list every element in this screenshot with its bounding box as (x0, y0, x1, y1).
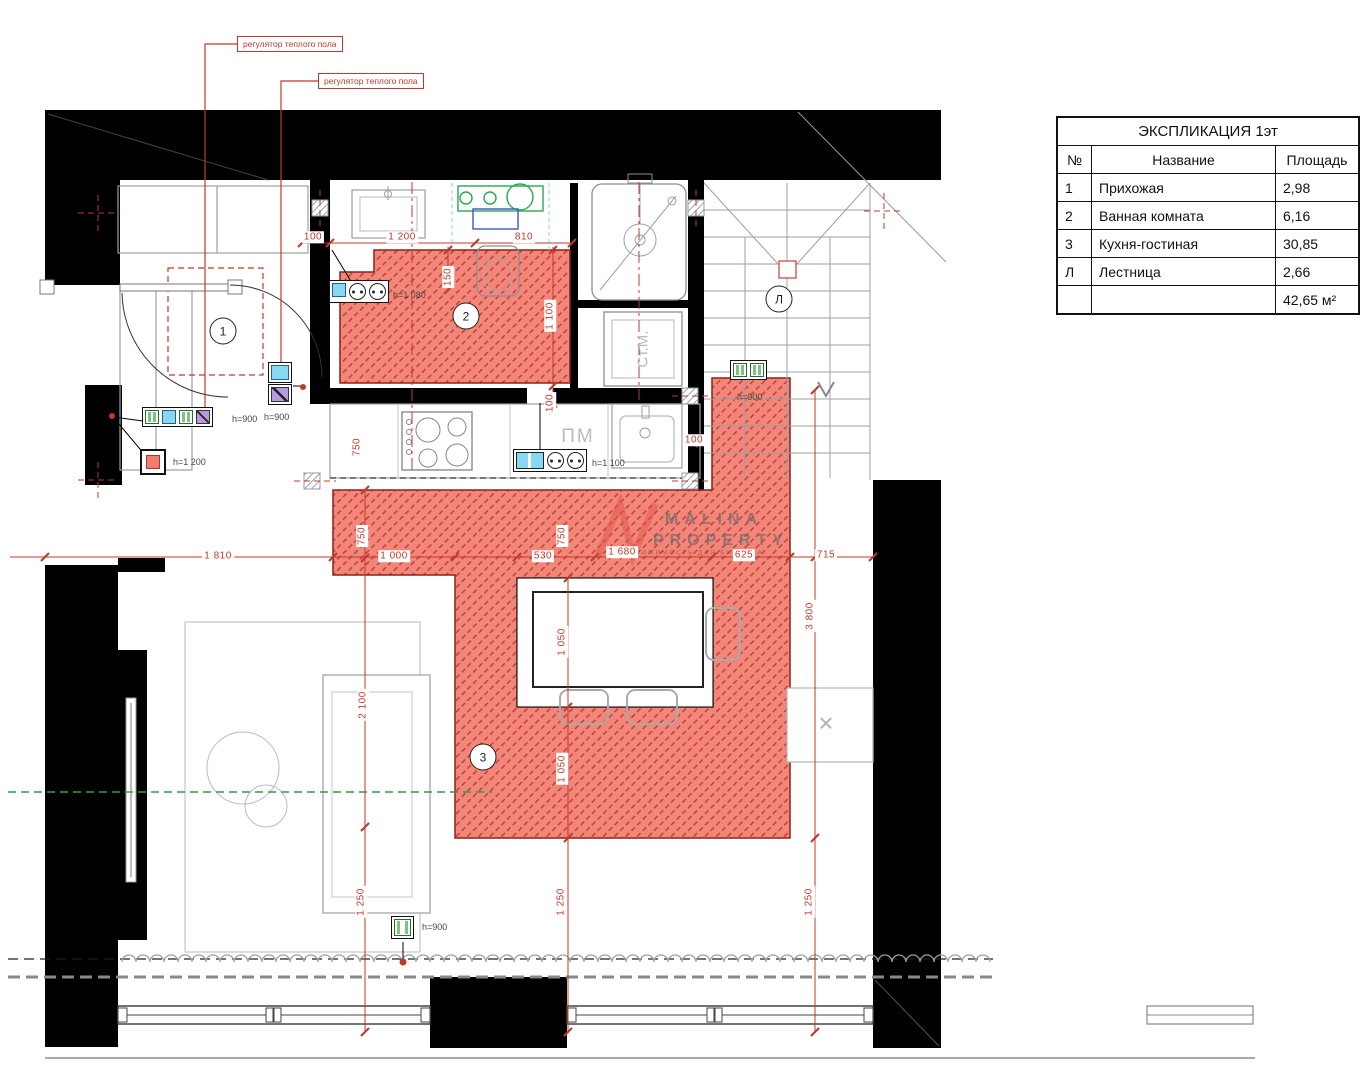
thermostat-purple-icon (271, 387, 289, 402)
switch-blue-icon (271, 365, 289, 380)
switch-blue-icon (162, 410, 176, 424)
door-jamb (228, 280, 242, 294)
floor-plan-canvas: регулятор теплого пола регулятор теплого… (0, 0, 1368, 1085)
header-num: № (1058, 146, 1092, 173)
explication-table: ЭКСПЛИКАЦИЯ 1эт № Название Площадь 1 При… (1056, 116, 1360, 315)
cell-area: 2,98 (1276, 174, 1358, 201)
cell-num: 3 (1058, 230, 1092, 257)
table-row: 2 Ванная комната 6,16 (1058, 202, 1358, 230)
socket-round-icon (349, 283, 366, 300)
stairs-socket-group (730, 360, 767, 380)
socket-double-blue-icon (516, 452, 544, 469)
bath-blue-unit (473, 209, 518, 229)
dimension-label: 810 (513, 231, 535, 243)
table-total-row: 42,65 м² (1058, 286, 1358, 313)
explication-title: ЭКСПЛИКАЦИЯ 1эт (1058, 118, 1358, 146)
switch-green-icon (179, 410, 193, 424)
room-marker-bath: 2 (453, 303, 480, 330)
kitchen-socket-group (513, 449, 587, 472)
cell-num: 1 (1058, 174, 1092, 201)
thermostat-purple-icon (196, 410, 210, 424)
room-marker-kitchen: 3 (470, 744, 497, 771)
table-row: 1 Прихожая 2,98 (1058, 174, 1358, 202)
window-socket (391, 916, 414, 939)
stairs-down-arrow (818, 382, 834, 396)
dimension-label: 1 200 (386, 231, 418, 243)
height-label: h=1 100 (592, 458, 625, 468)
cell-num (1058, 286, 1092, 313)
entry-switch-group (142, 407, 213, 427)
coffee-table-small (245, 785, 287, 827)
cell-area: 6,16 (1276, 202, 1358, 229)
dimension-label: 1 000 (378, 550, 410, 562)
wall-left-mid (85, 385, 122, 485)
door-jamb (40, 280, 54, 294)
explication-header-row: № Название Площадь (1058, 146, 1358, 174)
dimension-label: 1 680 (606, 546, 638, 558)
table-row: 3 Кухня-гостиная 30,85 (1058, 230, 1358, 258)
stairs-newel (779, 261, 796, 278)
coffee-table-large (207, 732, 279, 804)
height-label: h=900 (264, 412, 289, 422)
height-label: h=1 200 (173, 457, 206, 467)
cell-name: Ванная комната (1092, 202, 1276, 229)
dimension-label: 1 050 (556, 753, 568, 785)
height-label: h=900 (232, 414, 257, 424)
height-label: h=900 (737, 392, 762, 402)
room-marker-stairs: Л (766, 286, 793, 313)
dimension-label: 1 050 (556, 626, 568, 658)
socket-round-icon (369, 283, 386, 300)
wall-step (118, 558, 165, 572)
dimension-label: 750 (351, 436, 363, 458)
dimension-label: 715 (815, 549, 837, 561)
cell-num: Л (1058, 258, 1092, 285)
dimension-label: 3 800 (804, 600, 816, 632)
height-label: h=900 (422, 922, 447, 932)
cell-name: Лестница (1092, 258, 1276, 285)
dimension-label: 1 250 (555, 886, 567, 918)
dimension-label: 150 (442, 266, 454, 288)
wall-right (873, 480, 941, 1048)
socket-green-icon (750, 363, 764, 377)
switch-green-icon (145, 410, 159, 424)
header-area: Площадь (1276, 146, 1358, 173)
cell-name (1092, 286, 1276, 313)
regulator-label-2: регулятор теплого пола (318, 73, 424, 89)
wall-bath-shower (570, 183, 578, 393)
regulator-leader-1 (205, 44, 237, 410)
dimension-label: 530 (532, 550, 554, 562)
socket-green-icon (733, 363, 747, 377)
header-name: Название (1092, 146, 1276, 173)
wall-left-upper (45, 180, 120, 285)
dimension-label: 2 100 (357, 689, 369, 721)
floor-thermostat-symbol (140, 449, 166, 475)
room-marker-hall: 1 (210, 318, 237, 345)
entry-door-leaf (120, 284, 228, 291)
wall-left-lower (45, 565, 118, 1047)
cell-name: Кухня-гостиная (1092, 230, 1276, 257)
watermark-line2: PROPERTY (653, 532, 789, 550)
dimension-label: 625 (733, 549, 755, 561)
watermark-line1: MALINA (665, 511, 763, 529)
dimension-label: 100 (302, 231, 324, 243)
cabinet-cross-mark: ✕ (818, 712, 835, 737)
hall-switch-top (268, 362, 292, 383)
dimension-label: 100 (544, 392, 556, 414)
socket-green-icon (394, 919, 411, 936)
thermostat-red-icon (146, 455, 160, 469)
cell-total-area: 42,65 м² (1276, 286, 1358, 313)
socket-round-icon (567, 452, 584, 469)
dimension-label: 1 810 (202, 550, 234, 562)
cell-area: 2,66 (1276, 258, 1358, 285)
socket-round-icon (547, 452, 564, 469)
cell-name: Прихожая (1092, 174, 1276, 201)
height-label: h=1 080 (393, 290, 426, 300)
cell-num: 2 (1058, 202, 1092, 229)
hall-switch-bottom (268, 384, 292, 405)
table-row: Л Лестница 2,66 (1058, 258, 1358, 286)
wall-shower-wm (578, 300, 690, 308)
dimension-label: 750 (356, 525, 368, 547)
wall-bottom-mid (430, 977, 567, 1048)
dimension-label: 750 (556, 525, 568, 547)
dimension-label: 1 100 (544, 300, 556, 332)
dimension-label: 1 250 (803, 886, 815, 918)
cell-area: 30,85 (1276, 230, 1358, 257)
dimension-label: 1 250 (355, 886, 367, 918)
washing-machine-label: Ст.М. (635, 331, 652, 368)
switch-blue-icon (332, 283, 346, 297)
dimension-label: 100 (683, 434, 705, 446)
dishwasher-label: ПМ (561, 426, 594, 448)
regulator-label-1: регулятор теплого пола (237, 36, 343, 52)
sofa (323, 675, 430, 913)
bathroom-socket-group (329, 280, 389, 303)
entry-door-swing (122, 293, 228, 397)
wall-inner-a (310, 388, 527, 404)
